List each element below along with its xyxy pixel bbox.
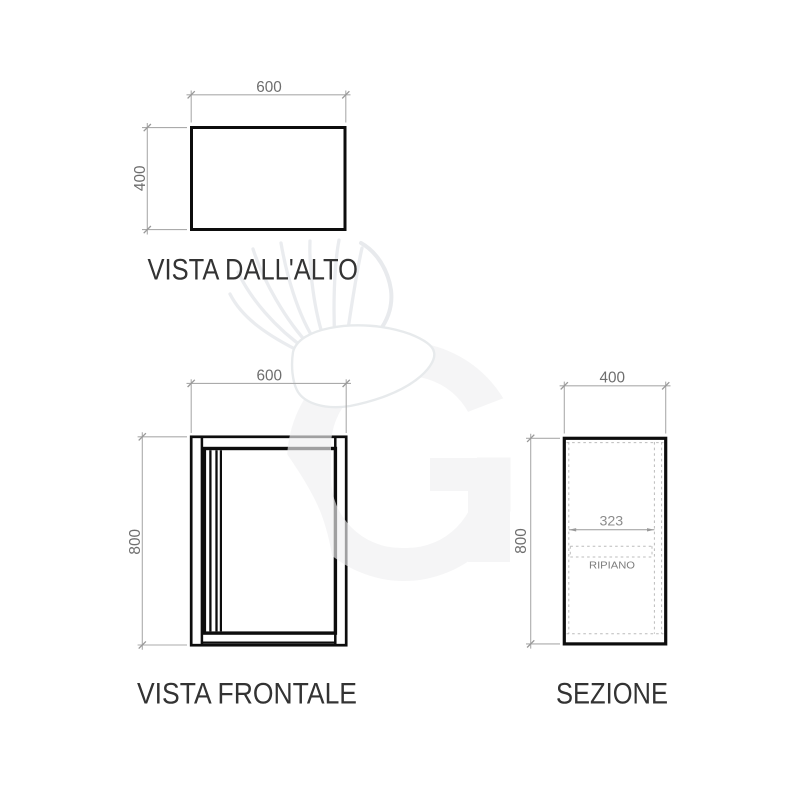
svg-text:400: 400: [600, 370, 626, 387]
svg-text:800: 800: [513, 528, 530, 554]
svg-text:400: 400: [132, 166, 149, 192]
svg-text:323: 323: [599, 514, 623, 530]
svg-text:SEZIONE: SEZIONE: [556, 678, 668, 711]
svg-text:600: 600: [257, 368, 283, 385]
svg-text:600: 600: [256, 79, 282, 96]
svg-text:RIPIANO: RIPIANO: [589, 561, 635, 572]
svg-text:800: 800: [127, 529, 144, 555]
svg-text:VISTA FRONTALE: VISTA FRONTALE: [137, 678, 357, 711]
svg-text:VISTA DALL'ALTO: VISTA DALL'ALTO: [148, 254, 359, 287]
